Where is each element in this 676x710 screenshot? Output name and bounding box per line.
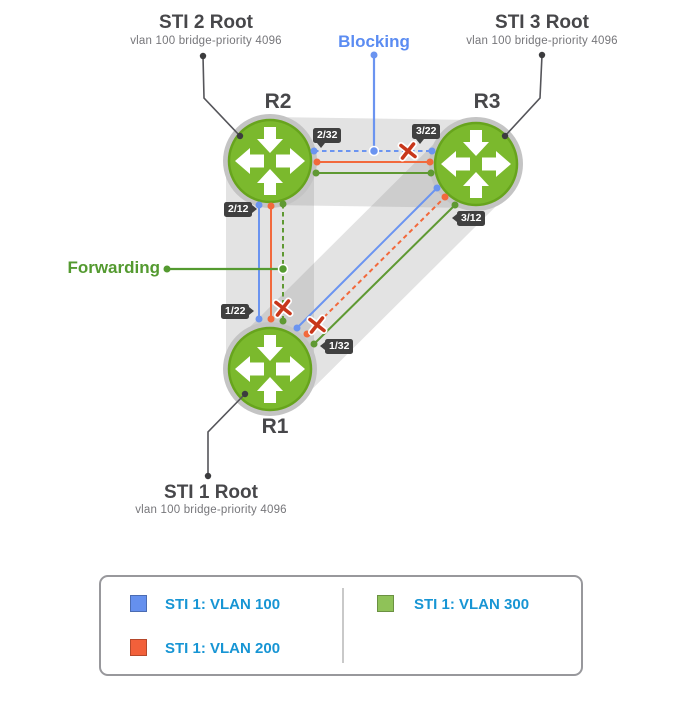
legend-box: STI 1: VLAN 100 STI 1: VLAN 200 STI 1: V…	[99, 575, 583, 676]
port-badge-2-32: 2/32	[313, 128, 341, 143]
sti3-root-subtitle: vlan 100 bridge-priority 4096	[442, 35, 642, 47]
port-badge-3-12: 3/12	[457, 211, 485, 226]
legend-divider	[342, 588, 344, 663]
sti1-root-subtitle: vlan 100 bridge-priority 4096	[111, 504, 311, 516]
blocked-x-r1r3	[310, 318, 324, 332]
router-label-r3: R3	[437, 90, 537, 114]
sti2-root-title: STI 2 Root	[106, 12, 306, 34]
port-badge-3-22: 3/22	[412, 124, 440, 139]
legend-label-vlan200: STI 1: VLAN 200	[165, 640, 280, 657]
blocked-x-r2r3	[401, 144, 415, 158]
blocked-x-r2r1	[276, 301, 290, 315]
mstp-topology-diagram: STI 2 Root vlan 100 bridge-priority 4096…	[0, 0, 676, 710]
router-icon-r2	[229, 120, 311, 202]
legend-swatch-vlan100	[130, 595, 147, 612]
sti1-root-title: STI 1 Root	[111, 482, 311, 504]
port-badge-1-22: 1/22	[221, 304, 249, 319]
legend-label-vlan100: STI 1: VLAN 100	[165, 596, 280, 613]
legend-swatch-vlan200	[130, 639, 147, 656]
port-badge-2-12: 2/12	[224, 202, 252, 217]
router-label-r2: R2	[228, 90, 328, 114]
legend-swatch-vlan300	[377, 595, 394, 612]
port-badge-1-32: 1/32	[325, 339, 353, 354]
blocking-label: Blocking	[314, 32, 434, 52]
sti2-root-subtitle: vlan 100 bridge-priority 4096	[106, 35, 306, 47]
legend-label-vlan300: STI 1: VLAN 300	[414, 596, 529, 613]
router-label-r1: R1	[225, 415, 325, 439]
sti3-root-title: STI 3 Root	[442, 12, 642, 34]
forwarding-label: Forwarding	[38, 258, 160, 278]
